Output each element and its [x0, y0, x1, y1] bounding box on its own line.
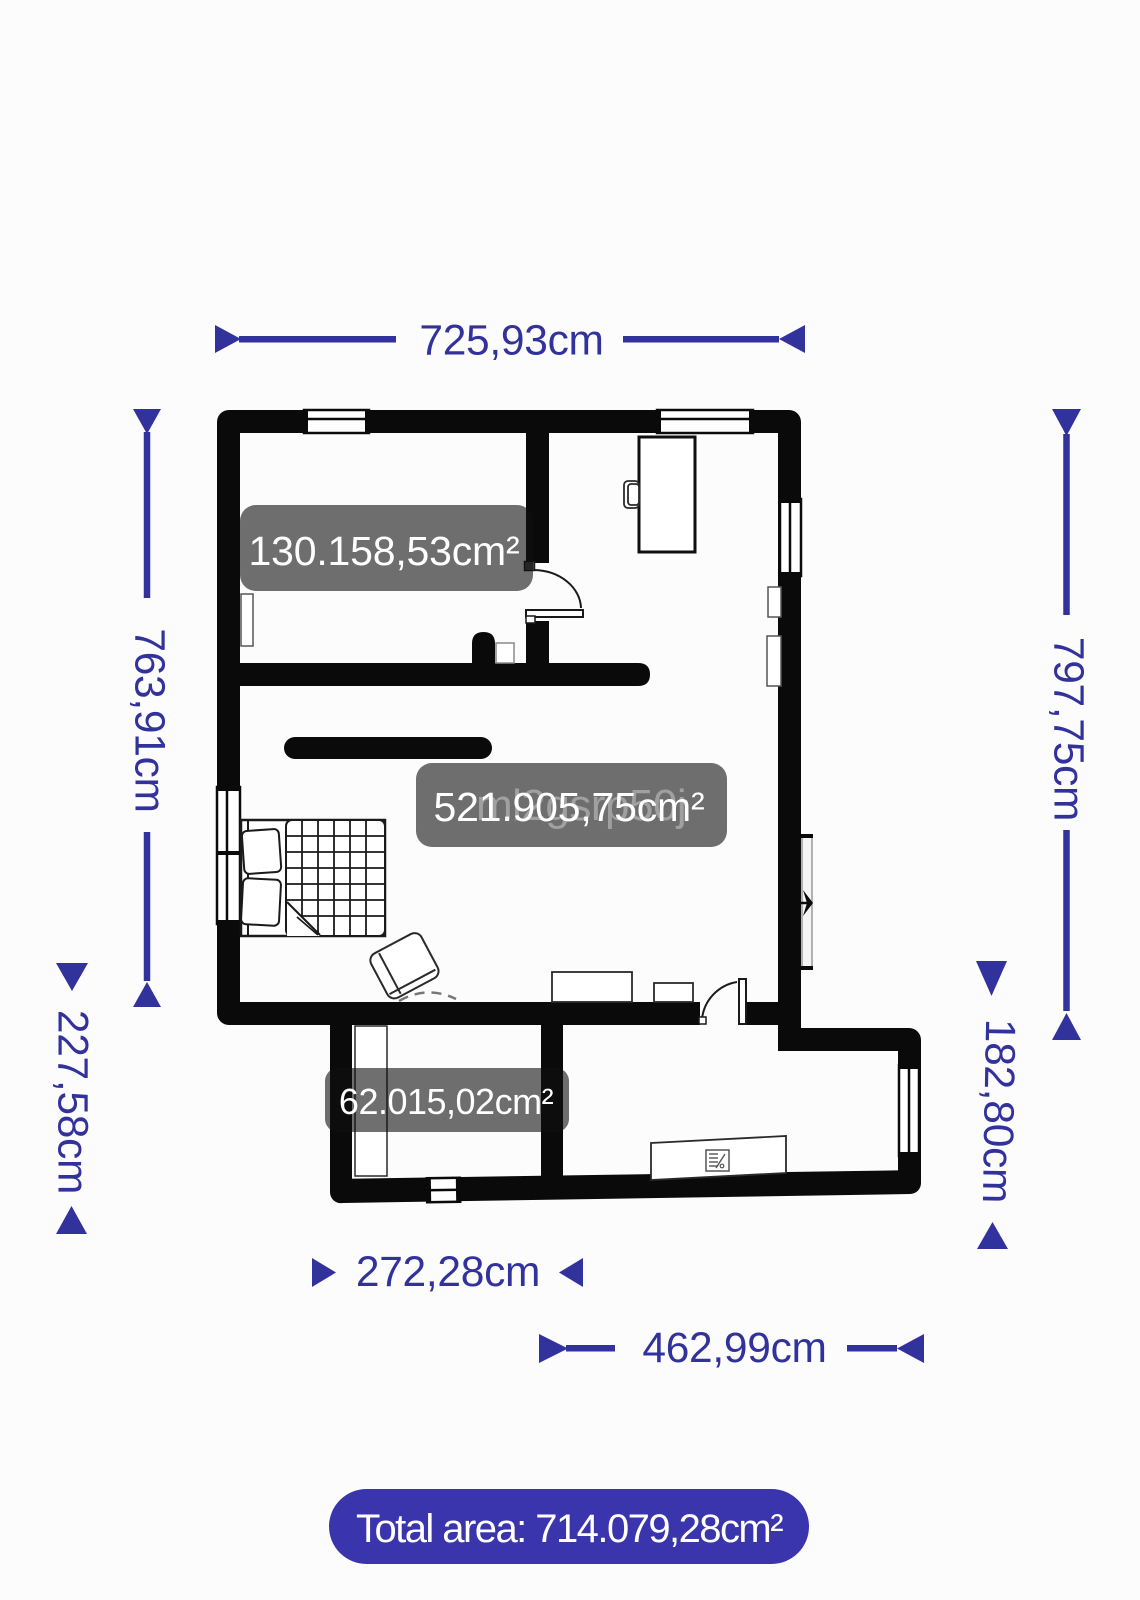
svg-text:725,93cm: 725,93cm: [419, 318, 603, 365]
svg-text:227,58cm: 227,58cm: [49, 1010, 96, 1194]
svg-text:462,99cm: 462,99cm: [642, 1325, 826, 1372]
svg-text:797,75cm: 797,75cm: [1045, 637, 1092, 821]
svg-text:62.015,02cm²: 62.015,02cm²: [339, 1081, 554, 1122]
svg-text:182,80cm: 182,80cm: [973, 1018, 1023, 1203]
svg-text:130.158,53cm²: 130.158,53cm²: [249, 528, 520, 574]
svg-text:Total area: 714.079,28cm²: Total area: 714.079,28cm²: [356, 1507, 783, 1551]
svg-text:272,28cm: 272,28cm: [356, 1249, 540, 1296]
svg-text:763,91cm: 763,91cm: [126, 628, 173, 812]
svg-text:521.905,75cm²: 521.905,75cm²: [434, 784, 705, 830]
